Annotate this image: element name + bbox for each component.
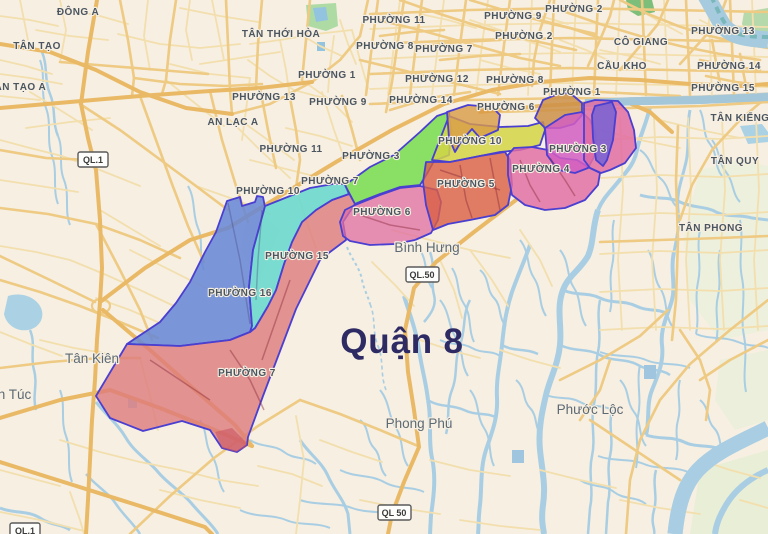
svg-text:PHƯỜNG 16: PHƯỜNG 16	[208, 286, 272, 299]
svg-text:PHƯỜNG 10: PHƯỜNG 10	[438, 134, 502, 147]
svg-text:PHƯỜNG 9: PHƯỜNG 9	[484, 9, 542, 22]
svg-text:QL 50: QL 50	[382, 508, 407, 518]
svg-text:PHƯỜNG 15: PHƯỜNG 15	[691, 81, 755, 94]
svg-text:CẦU KHO: CẦU KHO	[597, 59, 647, 72]
svg-text:TÂN PHONG: TÂN PHONG	[679, 221, 743, 234]
svg-text:PHƯỜNG 4: PHƯỜNG 4	[512, 162, 570, 175]
svg-text:PHƯỜNG 3: PHƯỜNG 3	[342, 149, 400, 162]
svg-text:PHƯỜNG 11: PHƯỜNG 11	[259, 142, 322, 155]
svg-text:PHƯỜNG 6: PHƯỜNG 6	[353, 205, 411, 218]
svg-text:Tân Kiên: Tân Kiên	[65, 351, 119, 366]
svg-text:PHƯỜNG 14: PHƯỜNG 14	[697, 59, 761, 72]
svg-text:Bình Hưng: Bình Hưng	[394, 240, 459, 255]
svg-text:QL.1: QL.1	[15, 526, 35, 534]
svg-text:PHƯỜNG 7: PHƯỜNG 7	[415, 42, 473, 55]
svg-text:ĐÔNG A: ĐÔNG A	[57, 5, 99, 18]
svg-text:TÂN TẠO: TÂN TẠO	[13, 39, 61, 52]
svg-text:PHƯỜNG 13: PHƯỜNG 13	[691, 24, 755, 37]
svg-text:PHƯỜNG 13: PHƯỜNG 13	[232, 90, 296, 103]
svg-text:TÂN KIỂNG: TÂN KIỂNG	[710, 111, 768, 124]
svg-text:PHƯỜNG 1: PHƯỜNG 1	[298, 68, 356, 81]
svg-text:PHƯỜNG 5: PHƯỜNG 5	[437, 177, 495, 190]
svg-text:PHƯỜNG 12: PHƯỜNG 12	[405, 72, 469, 85]
svg-text:PHƯỜNG 6: PHƯỜNG 6	[477, 100, 535, 113]
svg-text:AN LẠC A: AN LẠC A	[207, 117, 258, 128]
svg-text:TÂN QUY: TÂN QUY	[711, 154, 759, 167]
svg-text:PHƯỜNG 15: PHƯỜNG 15	[265, 249, 329, 262]
svg-text:PHƯỜNG 2: PHƯỜNG 2	[545, 2, 603, 15]
svg-text:TÂN TẠO A: TÂN TẠO A	[0, 80, 46, 93]
svg-text:PHƯỜNG 9: PHƯỜNG 9	[309, 95, 367, 108]
svg-text:Tân Túc: Tân Túc	[0, 387, 32, 402]
svg-text:QL.50: QL.50	[409, 270, 434, 280]
svg-text:Phước Lộc: Phước Lộc	[557, 402, 624, 417]
svg-text:TÂN THỚI HÒA: TÂN THỚI HÒA	[242, 27, 320, 40]
svg-text:PHƯỜNG 10: PHƯỜNG 10	[236, 184, 300, 197]
svg-text:PHƯỜNG 3: PHƯỜNG 3	[549, 142, 607, 155]
svg-text:PHƯỜNG 11: PHƯỜNG 11	[362, 13, 425, 26]
svg-text:PHƯỜNG 8: PHƯỜNG 8	[486, 73, 544, 86]
svg-text:PHƯỜNG 2: PHƯỜNG 2	[495, 29, 553, 42]
svg-text:PHƯỜNG 7: PHƯỜNG 7	[301, 174, 359, 187]
svg-text:PHƯỜNG 7: PHƯỜNG 7	[218, 366, 276, 379]
svg-text:PHƯỜNG 8: PHƯỜNG 8	[356, 39, 414, 52]
svg-text:CÔ GIANG: CÔ GIANG	[614, 35, 668, 48]
svg-text:Phong Phú: Phong Phú	[386, 416, 453, 431]
svg-text:PHƯỜNG 1: PHƯỜNG 1	[543, 85, 601, 98]
svg-text:Quận 8: Quận 8	[340, 322, 463, 361]
svg-text:PHƯỜNG 14: PHƯỜNG 14	[389, 93, 453, 106]
svg-text:QL.1: QL.1	[83, 155, 103, 165]
